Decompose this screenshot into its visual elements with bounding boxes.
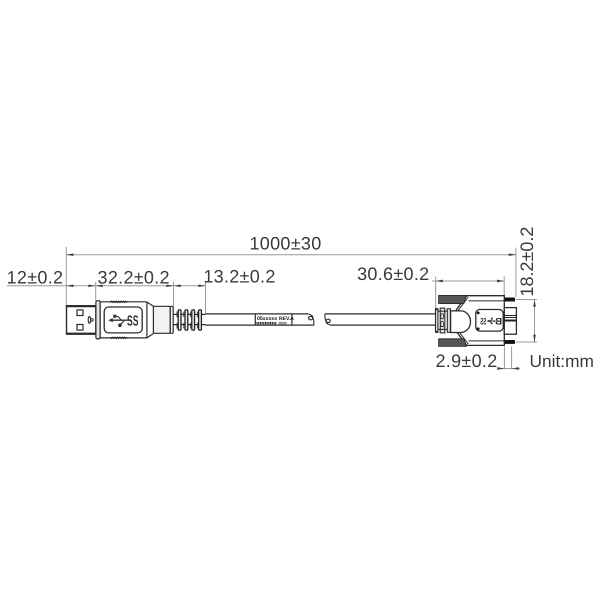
svg-text:12±0.2: 12±0.2 <box>7 268 64 288</box>
svg-text:32.2±0.2: 32.2±0.2 <box>98 268 170 288</box>
svg-text:SS: SS <box>127 313 139 329</box>
svg-text:13.2±0.2: 13.2±0.2 <box>203 267 275 287</box>
svg-text:30.6±0.2: 30.6±0.2 <box>357 264 429 284</box>
svg-text:05xxxxx: 05xxxxx <box>257 316 277 322</box>
svg-text:1000±30: 1000±30 <box>249 234 321 254</box>
svg-text:B: B <box>495 316 502 327</box>
svg-text:REV.A: REV.A <box>279 316 294 322</box>
svg-text:SS: SS <box>480 316 486 327</box>
svg-text:2.9±0.2: 2.9±0.2 <box>435 351 497 371</box>
svg-text:Unit:mm: Unit:mm <box>530 351 594 371</box>
svg-text:18.2±0.2: 18.2±0.2 <box>517 227 537 297</box>
